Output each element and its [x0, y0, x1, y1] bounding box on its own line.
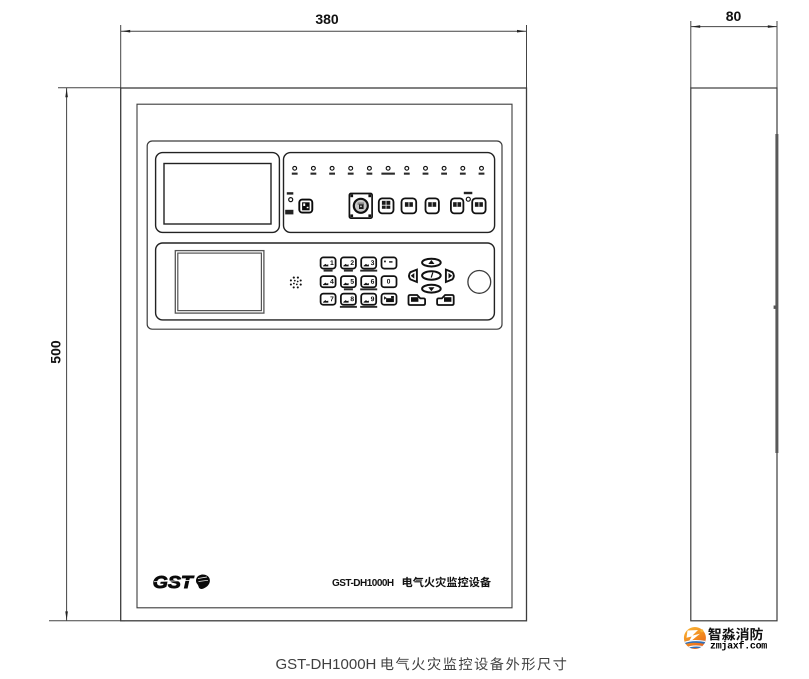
svg-text:GST-DH1000H: GST-DH1000H — [332, 578, 394, 589]
svg-text:zmjaxf.com: zmjaxf.com — [710, 641, 767, 653]
svg-text:500: 500 — [48, 340, 64, 364]
svg-text:GST: GST — [153, 572, 194, 592]
svg-text:GST-DH1000H: GST-DH1000H — [276, 656, 377, 673]
svg-text:80: 80 — [726, 8, 742, 24]
svg-text:380: 380 — [315, 11, 339, 27]
